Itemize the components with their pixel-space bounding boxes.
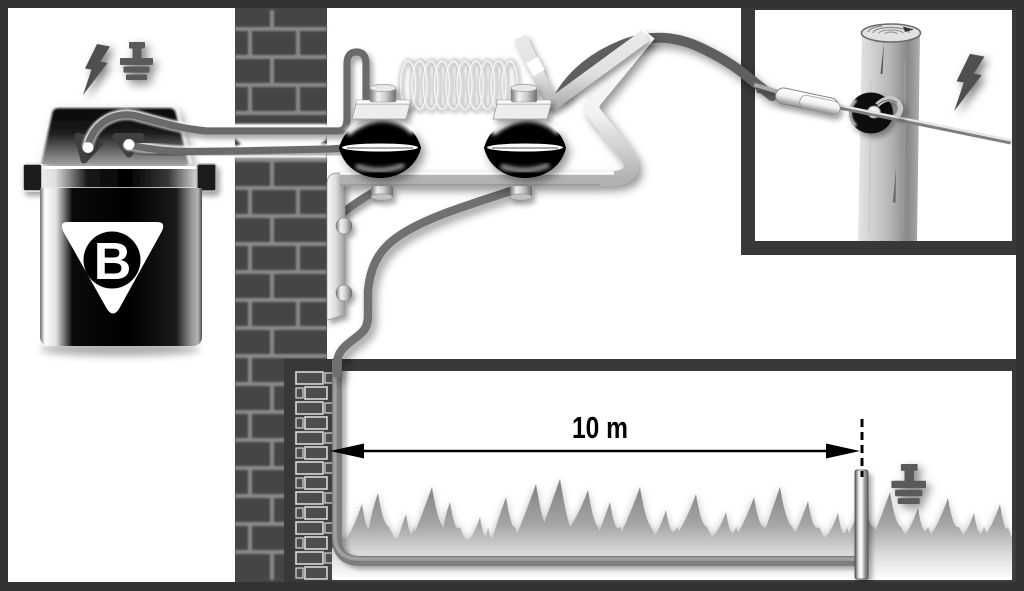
svg-text:10 m: 10 m: [572, 410, 628, 445]
svg-text:B: B: [94, 233, 132, 291]
